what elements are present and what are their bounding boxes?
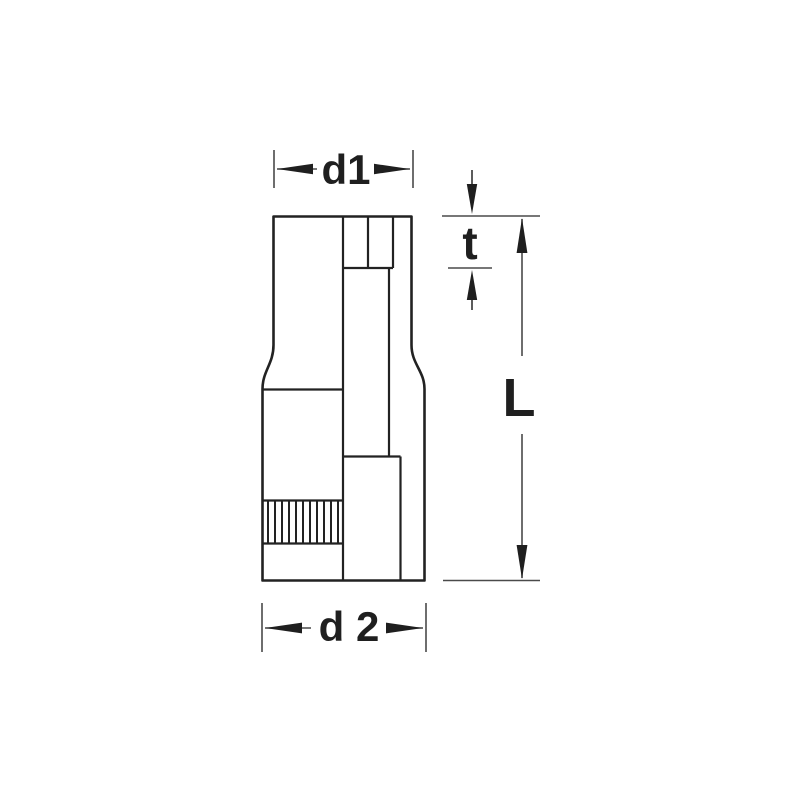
dimension-d2: d 2 <box>262 603 426 652</box>
dimension-length: L <box>443 218 540 581</box>
d2-arrow-left-icon <box>265 623 302 634</box>
length-arrow-up-icon <box>517 218 528 253</box>
d2-arrow-right-icon <box>386 623 423 634</box>
t-arrow-up-icon <box>467 270 477 300</box>
dimension-d1: d1 <box>274 146 413 193</box>
dimension-label-t: t <box>462 217 477 269</box>
technical-drawing: d1 t L d 2 <box>0 0 800 800</box>
dimension-label-length: L <box>503 368 536 428</box>
t-arrow-down-icon <box>467 184 477 214</box>
length-arrow-down-icon <box>517 545 528 579</box>
dimension-label-d2: d 2 <box>319 603 380 650</box>
knurling-hatch-lines <box>268 501 338 543</box>
d1-arrow-right-icon <box>374 164 410 174</box>
d1-arrow-left-icon <box>277 164 313 174</box>
knurling-band <box>263 501 344 544</box>
drawing-canvas: d1 t L d 2 <box>0 0 800 800</box>
socket-body <box>263 217 425 581</box>
dimension-label-d1: d1 <box>321 146 370 193</box>
